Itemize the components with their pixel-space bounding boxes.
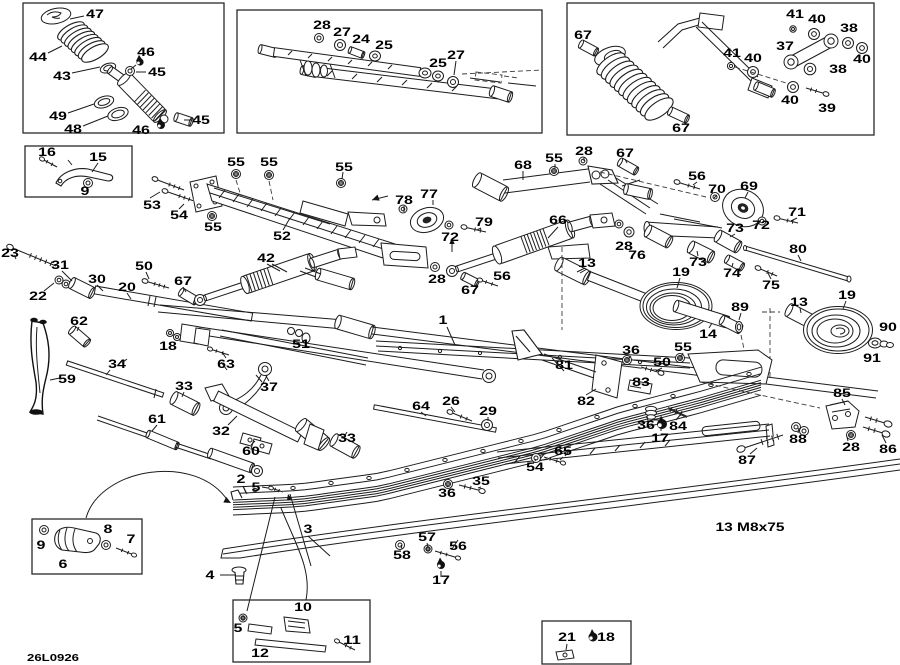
svg-text:47: 47 [86, 8, 104, 21]
svg-text:15: 15 [89, 151, 108, 164]
svg-text:55: 55 [204, 221, 223, 234]
svg-text:85: 85 [833, 387, 852, 400]
svg-text:5: 5 [234, 622, 244, 635]
svg-text:29: 29 [479, 405, 498, 418]
svg-text:17: 17 [432, 574, 450, 587]
svg-text:48: 48 [64, 123, 83, 136]
svg-text:49: 49 [49, 110, 68, 123]
svg-text:6: 6 [59, 558, 69, 571]
svg-text:45: 45 [192, 114, 211, 127]
svg-text:5: 5 [252, 481, 262, 494]
svg-text:73: 73 [689, 256, 708, 269]
svg-text:43: 43 [53, 70, 72, 83]
svg-text:65: 65 [554, 445, 573, 458]
svg-text:11: 11 [343, 634, 362, 647]
svg-text:25: 25 [375, 39, 394, 52]
svg-text:66: 66 [549, 214, 568, 227]
svg-text:71: 71 [788, 206, 807, 219]
svg-text:18: 18 [159, 340, 178, 353]
svg-text:61: 61 [148, 413, 167, 426]
svg-text:9: 9 [37, 539, 47, 552]
svg-text:10: 10 [294, 601, 312, 614]
svg-text:74: 74 [723, 267, 742, 280]
svg-text:26L0926: 26L0926 [27, 653, 80, 664]
svg-text:87: 87 [738, 454, 756, 467]
svg-text:42: 42 [257, 252, 275, 265]
svg-text:68: 68 [514, 159, 533, 172]
svg-text:82: 82 [577, 395, 595, 408]
svg-text:73: 73 [726, 222, 745, 235]
svg-text:69: 69 [740, 180, 759, 193]
svg-text:78: 78 [395, 194, 414, 207]
svg-text:33: 33 [175, 380, 194, 393]
svg-text:4: 4 [206, 569, 216, 582]
svg-text:57: 57 [418, 531, 436, 544]
svg-text:38: 38 [829, 63, 848, 76]
svg-text:7: 7 [127, 533, 136, 546]
svg-text:28: 28 [428, 273, 447, 286]
svg-text:13: 13 [578, 257, 597, 270]
svg-text:84: 84 [669, 420, 688, 433]
svg-text:28: 28 [575, 145, 594, 158]
svg-text:80: 80 [789, 243, 807, 256]
svg-text:40: 40 [781, 94, 799, 107]
svg-text:76: 76 [628, 249, 647, 262]
svg-text:24: 24 [352, 33, 371, 46]
svg-text:62: 62 [70, 315, 88, 328]
svg-text:56: 56 [493, 270, 512, 283]
svg-text:3: 3 [304, 523, 314, 536]
svg-text:34: 34 [108, 358, 127, 371]
svg-text:30: 30 [88, 273, 106, 286]
svg-text:88: 88 [789, 433, 808, 446]
svg-text:44: 44 [29, 51, 48, 64]
svg-text:81: 81 [555, 359, 574, 372]
svg-text:53: 53 [143, 199, 162, 212]
svg-text:72: 72 [752, 219, 770, 232]
svg-text:59: 59 [58, 373, 77, 386]
svg-text:12: 12 [251, 647, 269, 660]
svg-text:55: 55 [335, 161, 354, 174]
svg-text:56: 56 [449, 540, 468, 553]
svg-text:41: 41 [723, 47, 742, 60]
svg-text:72: 72 [441, 231, 459, 244]
svg-text:55: 55 [674, 341, 693, 354]
svg-text:77: 77 [420, 188, 438, 201]
svg-text:26: 26 [442, 395, 461, 408]
svg-text:35: 35 [472, 475, 491, 488]
svg-text:23: 23 [1, 247, 20, 260]
svg-text:41: 41 [786, 8, 805, 21]
svg-text:89: 89 [731, 301, 750, 314]
svg-text:13 M8x75: 13 M8x75 [716, 521, 786, 534]
svg-text:31: 31 [51, 259, 70, 272]
svg-text:2: 2 [237, 473, 246, 486]
svg-text:19: 19 [838, 289, 857, 302]
svg-text:90: 90 [879, 321, 897, 334]
svg-text:36: 36 [622, 344, 641, 357]
svg-text:20: 20 [118, 281, 136, 294]
svg-text:60: 60 [242, 445, 260, 458]
svg-text:13: 13 [790, 296, 809, 309]
svg-text:22: 22 [29, 290, 47, 303]
svg-text:28: 28 [313, 19, 332, 32]
svg-text:27: 27 [333, 26, 351, 39]
svg-text:40: 40 [853, 53, 871, 66]
svg-text:46: 46 [137, 46, 156, 59]
svg-text:64: 64 [412, 400, 431, 413]
svg-text:70: 70 [708, 183, 726, 196]
svg-text:67: 67 [174, 275, 192, 288]
svg-text:17: 17 [651, 432, 669, 445]
svg-text:67: 67 [616, 147, 634, 160]
svg-text:79: 79 [475, 216, 494, 229]
svg-text:75: 75 [762, 279, 781, 292]
svg-text:51: 51 [292, 338, 311, 351]
svg-text:52: 52 [273, 230, 291, 243]
svg-text:37: 37 [776, 40, 794, 53]
svg-text:37: 37 [260, 381, 278, 394]
svg-text:55: 55 [545, 152, 564, 165]
svg-text:54: 54 [170, 209, 189, 222]
svg-text:18: 18 [597, 631, 616, 644]
svg-text:40: 40 [744, 52, 762, 65]
svg-text:16: 16 [38, 146, 57, 159]
svg-text:19: 19 [672, 266, 691, 279]
svg-text:46: 46 [132, 124, 151, 137]
svg-text:25: 25 [429, 57, 448, 70]
svg-text:91: 91 [863, 352, 882, 365]
svg-text:9: 9 [81, 185, 91, 198]
svg-text:45: 45 [148, 66, 167, 79]
svg-text:21: 21 [558, 631, 577, 644]
svg-text:50: 50 [653, 356, 671, 369]
svg-text:55: 55 [227, 156, 246, 169]
svg-text:67: 67 [574, 29, 592, 42]
svg-text:67: 67 [672, 122, 690, 135]
svg-text:33: 33 [338, 432, 357, 445]
svg-text:39: 39 [818, 102, 837, 115]
svg-text:55: 55 [260, 156, 279, 169]
svg-text:27: 27 [447, 49, 465, 62]
svg-text:67: 67 [461, 284, 479, 297]
svg-text:58: 58 [393, 549, 412, 562]
svg-text:38: 38 [840, 22, 859, 35]
svg-text:50: 50 [135, 260, 153, 273]
svg-text:8: 8 [104, 523, 114, 536]
svg-text:36: 36 [438, 487, 457, 500]
svg-text:14: 14 [699, 328, 718, 341]
svg-text:1: 1 [439, 314, 449, 327]
svg-text:56: 56 [688, 170, 707, 183]
svg-text:54: 54 [526, 461, 545, 474]
svg-text:86: 86 [879, 443, 898, 456]
svg-text:32: 32 [212, 425, 230, 438]
svg-text:28: 28 [842, 441, 861, 454]
svg-text:36: 36 [637, 419, 656, 432]
svg-text:40: 40 [808, 13, 826, 26]
